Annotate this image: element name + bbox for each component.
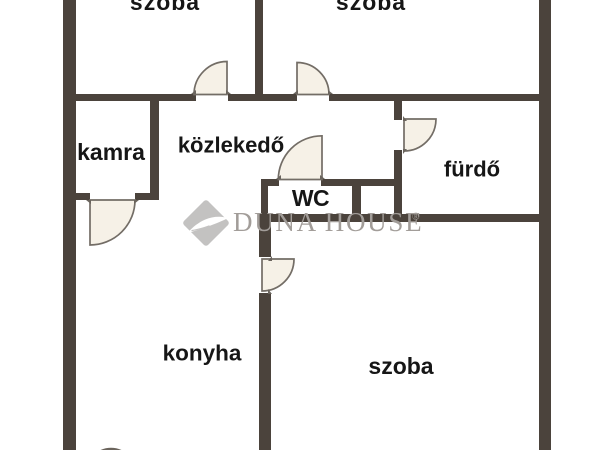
svg-text:konyha: konyha bbox=[163, 341, 242, 366]
svg-text:szoba: szoba bbox=[368, 353, 433, 379]
svg-text:kamra: kamra bbox=[77, 139, 145, 165]
svg-text:fürdő: fürdő bbox=[444, 157, 500, 182]
svg-text:WC: WC bbox=[292, 185, 329, 211]
svg-text:DUNA HOUSE: DUNA HOUSE bbox=[233, 207, 423, 237]
svg-text:szoba: szoba bbox=[336, 0, 406, 15]
svg-text:szoba: szoba bbox=[130, 0, 200, 15]
svg-text:®: ® bbox=[412, 212, 420, 223]
svg-text:közlekedő: közlekedő bbox=[178, 133, 284, 158]
